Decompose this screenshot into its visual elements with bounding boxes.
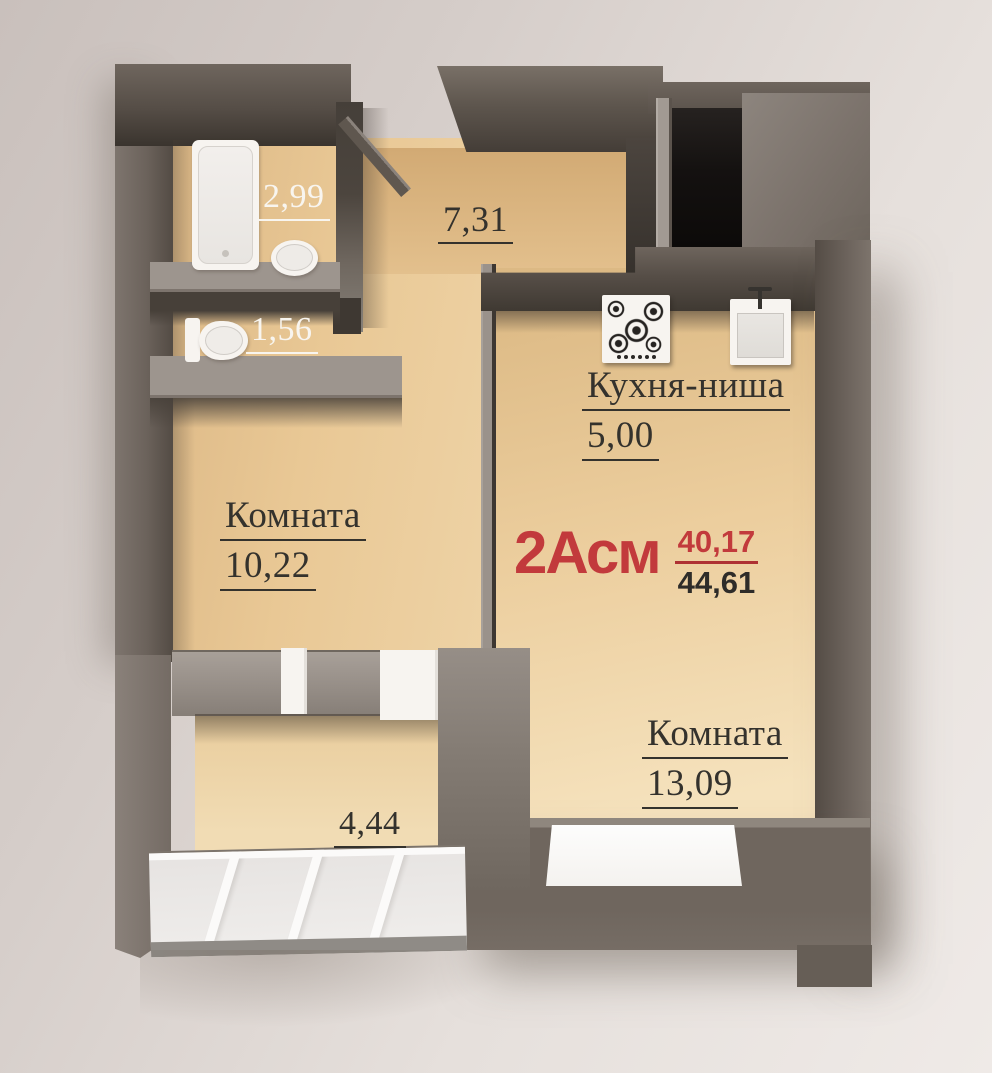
balcony-glazing bbox=[149, 845, 467, 958]
wash-basin bbox=[271, 240, 318, 276]
wc-area-value: 1,56 bbox=[246, 312, 318, 354]
wall-niche-left bbox=[656, 98, 672, 258]
hob-burner bbox=[608, 333, 629, 354]
bathtub-drain bbox=[222, 250, 229, 257]
room-left-area-value: 10,22 bbox=[220, 546, 316, 591]
apartment-total-area: 44,61 bbox=[678, 564, 756, 598]
wall-wc-room-shadow bbox=[150, 398, 402, 428]
toilet bbox=[199, 321, 248, 360]
room-right-name: Комната bbox=[642, 714, 788, 759]
balcony-window-unit bbox=[380, 650, 438, 720]
room-right-label: Комната 13,09 bbox=[642, 714, 788, 814]
kitchen-area-value: 5,00 bbox=[582, 416, 659, 461]
apartment-type-label: 2Асм 40,17 44,61 bbox=[514, 524, 758, 598]
room-left-name: Комната bbox=[220, 496, 366, 541]
kitchen-label: Кухня-ниша 5,00 bbox=[582, 366, 790, 466]
room-left-label: Комната 10,22 bbox=[220, 496, 366, 596]
bathtub bbox=[192, 140, 259, 270]
window bbox=[546, 825, 742, 886]
hob-burner bbox=[607, 300, 625, 318]
balcony-area-label: 4,44 bbox=[334, 806, 406, 848]
kitchen-sink-bowl bbox=[737, 313, 784, 358]
balcony-door-unit bbox=[281, 648, 307, 714]
wash-basin-bowl bbox=[276, 244, 313, 271]
room-right-area-value: 13,09 bbox=[642, 764, 738, 809]
apartment-type: 2Асм bbox=[514, 524, 660, 581]
floor-plan: 2,99 1,56 7,31 Кухня-ниша 5,00 Комната 1… bbox=[0, 0, 992, 1073]
wall-wc-room-divider bbox=[150, 356, 402, 398]
kitchen-sink bbox=[730, 299, 791, 365]
apartment-living-area: 40,17 bbox=[675, 526, 759, 564]
kitchen-name: Кухня-ниша bbox=[582, 366, 790, 411]
wall-hall-kitchen bbox=[481, 264, 496, 658]
apartment-area-fraction: 40,17 44,61 bbox=[675, 526, 759, 598]
balcony-drop-shadow bbox=[140, 950, 520, 1028]
wall-top-right-corner bbox=[742, 93, 870, 247]
bathroom-area-value: 2,99 bbox=[258, 179, 330, 221]
bathroom-area-label: 2,99 bbox=[258, 179, 330, 221]
toilet-bowl bbox=[205, 326, 243, 355]
hob-burner bbox=[643, 301, 664, 322]
gas-hob bbox=[602, 295, 670, 363]
wall-top-bathroom bbox=[115, 64, 351, 146]
bathtub-basin bbox=[198, 146, 253, 264]
hallway-area-value: 7,31 bbox=[438, 200, 513, 244]
wc-area-label: 1,56 bbox=[246, 312, 318, 354]
hallway-area-label: 7,31 bbox=[438, 200, 513, 244]
hob-burner bbox=[645, 336, 662, 353]
faucet-handle bbox=[748, 287, 772, 291]
hob-knobs bbox=[617, 355, 656, 359]
balcony-area-value: 4,44 bbox=[334, 806, 406, 848]
wall-bottom-right-foot bbox=[797, 945, 872, 987]
dark-niche bbox=[672, 108, 742, 248]
toilet-tank bbox=[185, 318, 200, 362]
